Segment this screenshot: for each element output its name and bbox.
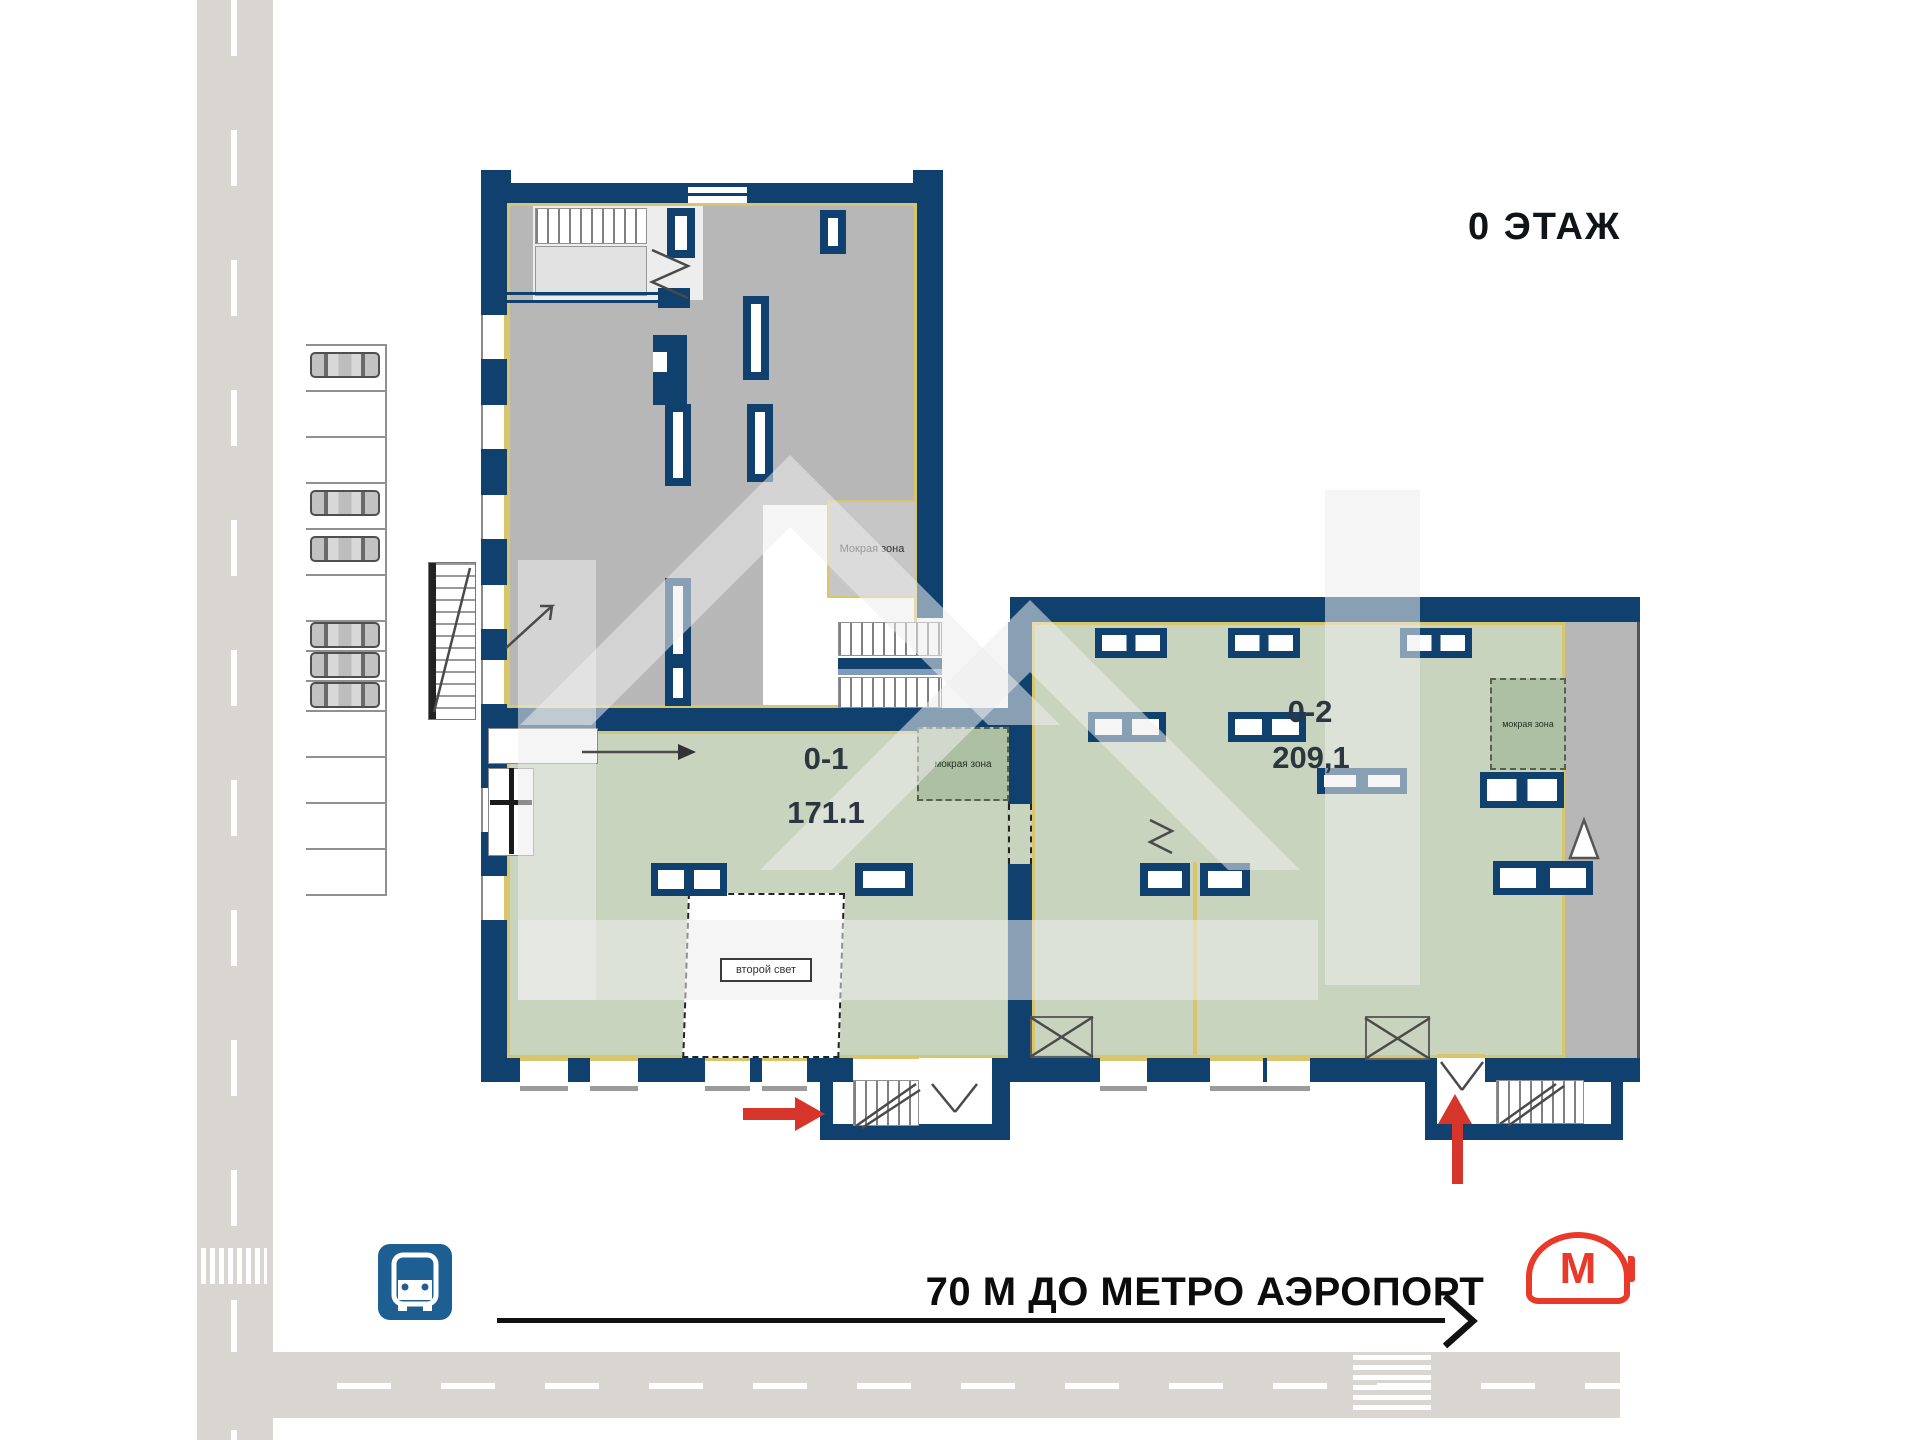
bus-stop-icon	[378, 1244, 452, 1320]
crosswalk-marking	[201, 1248, 267, 1284]
entrance-arrow-right	[743, 1108, 795, 1120]
pillar	[820, 210, 846, 254]
bus-headlight	[422, 1284, 429, 1291]
metro-arrow-line	[497, 1318, 1445, 1323]
metro-distance-text: 70 М ДО МЕТРО АЭРОПОРТ	[905, 1270, 1505, 1315]
parked-car-icon	[310, 622, 380, 648]
wall-bottom-0-2	[1000, 1058, 1640, 1082]
pillar	[1228, 628, 1300, 658]
window-mullion	[688, 193, 747, 196]
window	[1100, 1058, 1147, 1082]
wall-top-0-2	[1010, 597, 1640, 622]
wet-zone-0-1: мокрая зона	[917, 727, 1009, 801]
external-stairs	[428, 562, 476, 720]
entrance-arrow-up	[1452, 1124, 1463, 1184]
stairs-landing-edge	[838, 669, 942, 675]
partition-line	[1193, 862, 1197, 1058]
pillar	[1200, 863, 1250, 896]
entrance-opening	[1437, 1058, 1485, 1084]
pillar	[855, 863, 913, 896]
door-swing-glyph	[932, 1084, 955, 1112]
window-sill	[762, 1086, 807, 1091]
window	[481, 405, 507, 449]
window-top-wall	[688, 187, 747, 203]
parked-car-icon	[310, 652, 380, 678]
entrance-stairs	[853, 1080, 919, 1126]
window	[520, 1058, 568, 1082]
floor-plan-page: Мокрая зона второй свет 0-1 171.1 мокрая…	[0, 0, 1920, 1440]
main-stairs	[838, 622, 942, 708]
unit-0-2-room	[1032, 622, 1565, 1058]
window-sill	[705, 1086, 750, 1091]
door-swing-glyph	[955, 1084, 977, 1112]
entry-niche	[488, 728, 598, 764]
unit-0-2-id: 0-2	[1262, 694, 1358, 730]
metro-letter: М	[1560, 1247, 1597, 1291]
window	[481, 660, 507, 704]
parked-car-icon	[310, 352, 380, 378]
pillar	[743, 296, 769, 380]
crosswalk-marking	[1353, 1355, 1431, 1415]
wet-zone-label: мокрая зона	[1502, 719, 1554, 729]
bus-wheel	[398, 1304, 407, 1311]
stairs-rail	[429, 563, 436, 719]
window-sill	[1210, 1086, 1310, 1091]
shaft-box	[1030, 1016, 1093, 1058]
wet-zone-room: Мокрая зона	[827, 500, 917, 598]
shaft-box	[1365, 1016, 1430, 1060]
parking-stall-lines	[306, 710, 385, 898]
unit-0-1-area: 171.1	[763, 795, 889, 831]
wall-notch	[653, 352, 667, 372]
floor-label: 0 ЭТАЖ	[1468, 206, 1621, 249]
bus-headlight	[402, 1284, 409, 1291]
metro-logo-notch	[1628, 1256, 1635, 1282]
entrance-arrow-right-head	[795, 1097, 825, 1131]
entrance-stairs	[1496, 1080, 1584, 1124]
parked-car-icon	[310, 536, 380, 562]
parked-car-icon	[310, 490, 380, 516]
pillar	[1480, 772, 1564, 808]
vestibule-wall	[820, 1124, 1000, 1140]
pillar	[665, 660, 691, 706]
window	[481, 495, 507, 539]
bus-wheel	[423, 1304, 432, 1311]
road-vertical	[197, 0, 273, 1440]
wet-zone-label: Мокрая зона	[840, 543, 905, 555]
pillar	[747, 404, 773, 482]
second-light-labelbox: второй свет	[720, 958, 812, 982]
window	[1267, 1058, 1310, 1082]
side-room-gray	[1565, 622, 1640, 1058]
window-sill	[520, 1086, 568, 1091]
fixture-mark	[509, 768, 514, 854]
window	[481, 585, 507, 629]
entrance-arrow-up-head	[1438, 1094, 1472, 1124]
wall-left	[481, 183, 507, 731]
pillar	[665, 578, 691, 662]
window-sill	[1100, 1086, 1147, 1091]
pillar	[1400, 628, 1472, 658]
stairs-treads	[838, 622, 942, 656]
guard-rail	[507, 292, 662, 303]
window-sill	[590, 1086, 638, 1091]
stairs-treads	[535, 208, 647, 244]
pillar	[1493, 861, 1593, 895]
window	[481, 315, 507, 359]
threshold-line	[1437, 1054, 1485, 1058]
pillar	[651, 863, 727, 896]
pillar	[665, 404, 691, 486]
wet-zone-0-2: мокрая зона	[1490, 678, 1566, 770]
threshold-line	[853, 1055, 919, 1059]
pillar	[1095, 628, 1167, 658]
stairs-landing	[838, 658, 942, 669]
window	[705, 1058, 750, 1082]
pillar	[1140, 863, 1190, 896]
vestibule-wall	[1611, 1082, 1623, 1130]
stairs-outline	[535, 246, 647, 296]
pillar	[667, 208, 695, 258]
wet-zone-label: мокрая зона	[934, 759, 991, 770]
bus-face	[398, 1280, 432, 1300]
second-light-label: второй свет	[736, 964, 796, 976]
unit-0-2-area: 209,1	[1246, 740, 1376, 776]
wall-right	[917, 183, 943, 618]
pillar	[1088, 712, 1166, 742]
window	[1210, 1058, 1263, 1082]
vestibule-wall	[992, 1058, 1010, 1140]
window	[762, 1058, 807, 1082]
parking-stall-lines	[306, 344, 385, 622]
unit-0-1-id: 0-1	[781, 741, 871, 777]
wall-opening-dashed	[1008, 804, 1032, 864]
vestibule-wall	[1425, 1082, 1437, 1130]
window	[590, 1058, 638, 1082]
road-center-dashes	[231, 0, 237, 1440]
stairs-treads	[838, 677, 942, 708]
stairs-treads	[436, 563, 475, 719]
window	[481, 876, 507, 920]
fixture-mark	[490, 800, 532, 805]
rail-post	[658, 288, 690, 308]
road-horizontal	[197, 1352, 1620, 1418]
parking-stalls	[306, 344, 387, 896]
moscow-metro-logo: М	[1526, 1232, 1630, 1304]
parked-car-icon	[310, 682, 380, 708]
